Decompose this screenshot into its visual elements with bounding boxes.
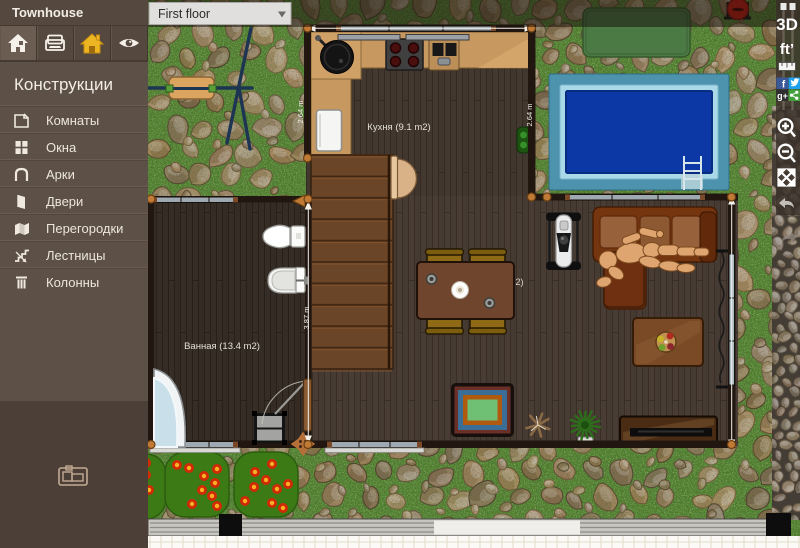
svg-text:2.64 m: 2.64 m (296, 101, 305, 124)
svg-text:3D: 3D (776, 15, 798, 34)
svg-text:2): 2) (516, 277, 524, 287)
svg-text:2.64 m: 2.64 m (525, 104, 534, 127)
svg-text:g+: g+ (777, 91, 788, 101)
svg-text:3.87 m: 3.87 m (302, 307, 311, 330)
svg-text:Кухня (9.1 m2): Кухня (9.1 m2) (367, 122, 430, 133)
svg-text:ft’: ft’ (780, 41, 794, 58)
svg-text:Ванная (13.4 m2): Ванная (13.4 m2) (184, 341, 260, 352)
svg-text:First floor: First floor (158, 7, 210, 21)
